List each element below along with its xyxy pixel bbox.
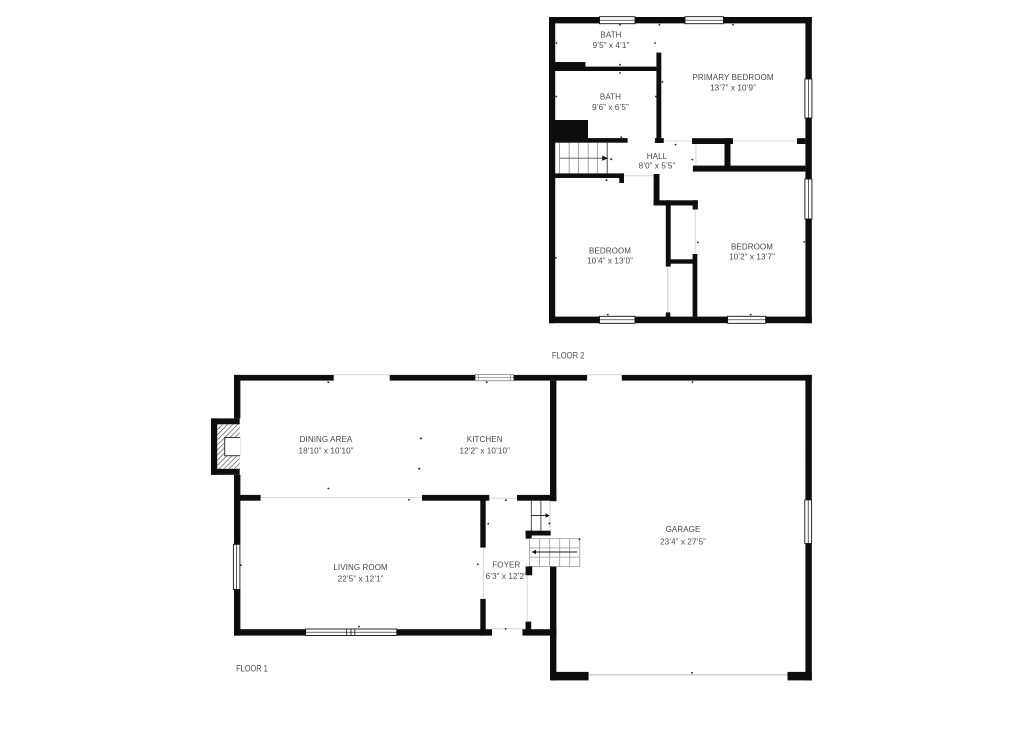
svg-text:8’0” x 5’5”: 8’0” x 5’5” [639, 162, 676, 171]
svg-text:9’6” x 6’5”: 9’6” x 6’5” [592, 103, 629, 112]
svg-text:23’4” x 27’5”: 23’4” x 27’5” [660, 538, 706, 547]
svg-text:KITCHEN: KITCHEN [467, 435, 503, 444]
svg-text:LIVING ROOM: LIVING ROOM [333, 563, 388, 572]
svg-text:BEDROOM: BEDROOM [589, 247, 631, 256]
svg-text:9’5” x 4’1”: 9’5” x 4’1” [593, 41, 630, 50]
svg-text:10’4” x 13’0”: 10’4” x 13’0” [587, 257, 633, 266]
svg-text:BATH: BATH [600, 31, 621, 40]
svg-text:PRIMARY BEDROOM: PRIMARY BEDROOM [692, 73, 773, 82]
svg-text:FOYER: FOYER [492, 561, 520, 570]
svg-text:6’3” x 12’2”: 6’3” x 12’2” [486, 572, 527, 581]
svg-text:BEDROOM: BEDROOM [731, 242, 773, 251]
svg-text:DINING AREA: DINING AREA [300, 435, 353, 444]
svg-text:BATH: BATH [600, 93, 621, 102]
svg-text:18’10” x 10’10”: 18’10” x 10’10” [298, 447, 353, 456]
svg-text:22’5” x 12’1”: 22’5” x 12’1” [338, 574, 384, 583]
svg-text:GARAGE: GARAGE [666, 525, 701, 534]
svg-text:FLOOR 2: FLOOR 2 [552, 350, 585, 360]
svg-text:12’2” x 10’10”: 12’2” x 10’10” [459, 447, 510, 456]
svg-text:10’2” x 13’7”: 10’2” x 13’7” [729, 252, 775, 261]
svg-text:13’7” x 10’9”: 13’7” x 10’9” [710, 83, 756, 92]
svg-text:HALL: HALL [647, 152, 668, 161]
svg-text:FLOOR 1: FLOOR 1 [236, 664, 268, 674]
